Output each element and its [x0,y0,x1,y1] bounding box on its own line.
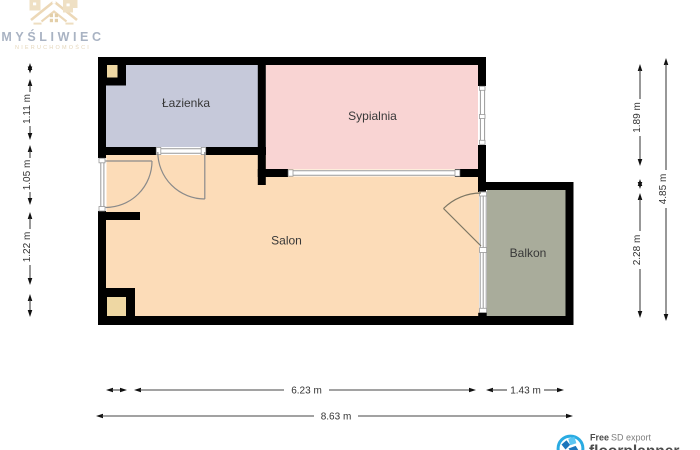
svg-text:1.43 m: 1.43 m [510,386,541,397]
svg-text:Łazienka: Łazienka [162,96,210,110]
svg-text:2.28 m: 2.28 m [632,235,643,266]
svg-text:Free: Free [590,433,609,443]
svg-text:SD export: SD export [611,433,652,443]
svg-text:1.22 m: 1.22 m [22,232,33,263]
svg-text:floorplanner: floorplanner [589,443,679,450]
svg-text:1.89 m: 1.89 m [632,102,643,133]
svg-text:Salon: Salon [271,234,302,248]
svg-text:8.63 m: 8.63 m [321,412,352,423]
svg-text:Sypialnia: Sypialnia [348,109,397,123]
svg-text:MYŚLIWIEC: MYŚLIWIEC [1,29,104,44]
svg-text:NIERUCHOMOŚCI: NIERUCHOMOŚCI [15,43,91,51]
svg-text:1.05 m: 1.05 m [22,160,33,191]
svg-text:4.85 m: 4.85 m [658,174,669,205]
svg-text:Balkon: Balkon [510,246,547,260]
svg-text:6.23 m: 6.23 m [291,386,322,397]
svg-text:1.11 m: 1.11 m [22,94,33,124]
